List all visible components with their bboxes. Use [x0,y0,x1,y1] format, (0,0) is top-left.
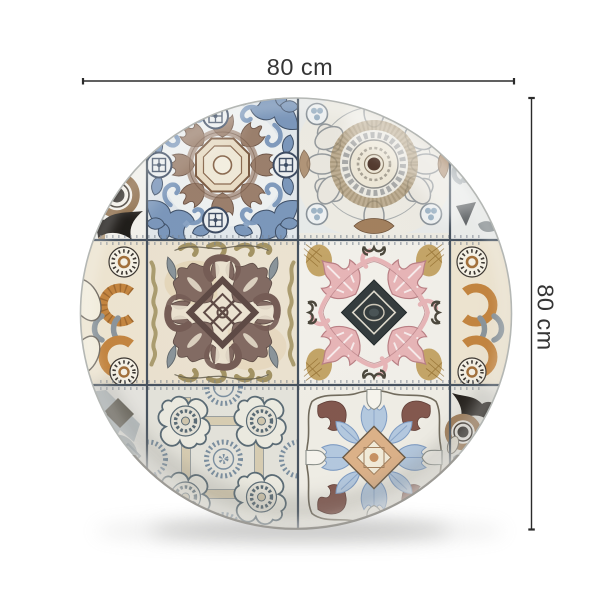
svg-text:80 cm: 80 cm [267,54,334,80]
svg-text:80 cm: 80 cm [533,284,559,351]
